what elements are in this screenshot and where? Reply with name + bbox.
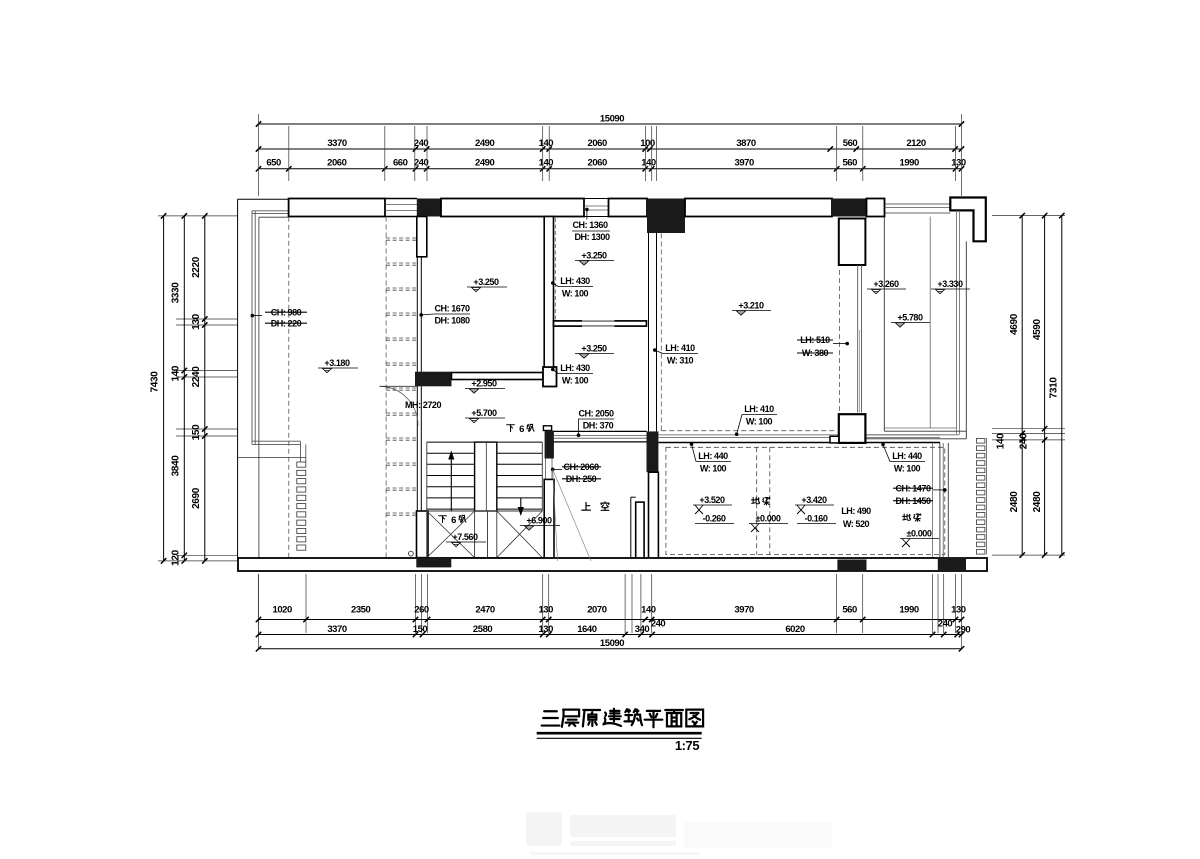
svg-text:650: 650 [266,158,281,169]
svg-text:1990: 1990 [900,158,920,169]
svg-text:1020: 1020 [273,605,293,616]
svg-text:+5.780: +5.780 [897,313,923,323]
svg-text:-0.160: -0.160 [805,514,828,524]
svg-text:LH: 440: LH: 440 [892,451,922,461]
svg-text:140: 140 [170,365,181,381]
svg-text:560: 560 [842,158,857,169]
svg-text:2070: 2070 [587,605,607,616]
svg-text:1990: 1990 [899,605,919,616]
svg-text:2470: 2470 [475,605,495,616]
svg-text:240: 240 [651,619,666,630]
svg-text:CH: 2050: CH: 2050 [578,409,614,419]
svg-text:LH: 410: LH: 410 [665,343,695,353]
svg-text:3330: 3330 [170,282,181,304]
svg-text:150: 150 [191,424,202,440]
svg-text:DH: 1300: DH: 1300 [574,232,610,242]
svg-text:140: 140 [641,605,656,616]
svg-text:2690: 2690 [191,487,202,509]
svg-text:LH: 490: LH: 490 [841,506,871,516]
svg-text:2480: 2480 [1009,491,1020,513]
svg-text:6: 6 [451,515,456,526]
svg-text:W: 100: W: 100 [894,464,921,474]
svg-text:W: 100: W: 100 [746,417,773,427]
svg-text:130: 130 [191,313,202,329]
svg-text:+7.560: +7.560 [452,532,478,542]
svg-text:+3.520: +3.520 [699,495,725,505]
svg-text:3370: 3370 [327,624,347,635]
svg-text:140: 140 [539,158,554,169]
svg-text:15090: 15090 [600,638,624,649]
svg-text:3870: 3870 [736,138,756,149]
svg-text:130: 130 [538,624,553,635]
svg-text:140: 140 [996,433,1007,449]
svg-text:560: 560 [842,605,857,616]
svg-text:LH: 430: LH: 430 [560,363,590,373]
svg-text:240: 240 [414,158,429,169]
svg-text:240: 240 [414,138,429,149]
svg-text:+5.700: +5.700 [471,408,497,418]
svg-text:560: 560 [843,138,858,149]
svg-text:+3.250: +3.250 [581,251,607,261]
svg-text:2060: 2060 [588,138,608,149]
svg-text:4590: 4590 [1032,318,1043,340]
svg-text:7430: 7430 [150,371,161,393]
svg-text:+3.250: +3.250 [581,344,607,354]
svg-text:290: 290 [956,625,971,636]
svg-text:2580: 2580 [473,624,493,635]
svg-text:2490: 2490 [475,138,495,149]
svg-text:2220: 2220 [191,256,202,278]
svg-text:CH: 1360: CH: 1360 [572,220,608,230]
svg-text:LH: 410: LH: 410 [744,404,774,414]
svg-text:150: 150 [413,624,428,635]
svg-text:240: 240 [938,619,953,630]
svg-text:15090: 15090 [600,114,624,125]
svg-text:CH: 1670: CH: 1670 [434,304,470,314]
svg-text:+6.900: +6.900 [526,516,552,526]
svg-text:3970: 3970 [734,605,754,616]
svg-text:130: 130 [951,158,966,169]
svg-text:6: 6 [519,424,524,435]
svg-text:+3.420: +3.420 [801,495,827,505]
svg-text:+3.210: +3.210 [738,301,764,311]
svg-text:120: 120 [170,549,181,565]
svg-text:260: 260 [414,605,429,616]
svg-text:+3.180: +3.180 [324,358,350,368]
svg-text:W: 310: W: 310 [667,356,694,366]
svg-text:2350: 2350 [351,605,371,616]
svg-text:6020: 6020 [785,624,805,635]
svg-text:W: 100: W: 100 [562,376,589,386]
svg-text:LH: 440: LH: 440 [698,451,728,461]
svg-text:-0.260: -0.260 [703,514,726,524]
svg-text:W: 100: W: 100 [562,289,589,299]
svg-text:2120: 2120 [906,138,926,149]
svg-text:100: 100 [640,138,655,149]
svg-text:4690: 4690 [1009,313,1020,335]
svg-text:MH: 2720: MH: 2720 [405,400,442,410]
svg-text:1640: 1640 [577,624,597,635]
svg-text:DH: 1080: DH: 1080 [434,316,470,326]
svg-text:240: 240 [1019,433,1030,449]
svg-text:DH: 370: DH: 370 [583,421,614,431]
svg-text:340: 340 [635,624,650,635]
svg-text:140: 140 [641,158,656,169]
svg-text:1:75: 1:75 [675,738,699,753]
svg-text:3370: 3370 [327,138,347,149]
svg-text:130: 130 [951,605,966,616]
svg-text:660: 660 [393,158,408,169]
svg-text:LH: 430: LH: 430 [560,276,590,286]
svg-text:+3.250: +3.250 [473,277,499,287]
svg-text:2240: 2240 [191,366,202,388]
svg-text:7310: 7310 [1049,377,1060,399]
svg-text:W: 100: W: 100 [700,464,727,474]
svg-text:2060: 2060 [327,158,347,169]
svg-text:2060: 2060 [588,158,608,169]
svg-text:3840: 3840 [170,455,181,477]
svg-text:W: 520: W: 520 [843,519,870,529]
svg-text:±0.000: ±0.000 [756,514,781,524]
svg-text:+3.330: +3.330 [937,279,963,289]
svg-text:±0.000: ±0.000 [907,529,932,539]
svg-text:2490: 2490 [475,158,495,169]
svg-text:140: 140 [539,138,554,149]
svg-text:+3.260: +3.260 [873,279,899,289]
svg-text:130: 130 [538,605,553,616]
svg-text:2480: 2480 [1032,491,1043,513]
svg-text:3970: 3970 [735,158,755,169]
svg-text:+2.950: +2.950 [471,379,497,389]
